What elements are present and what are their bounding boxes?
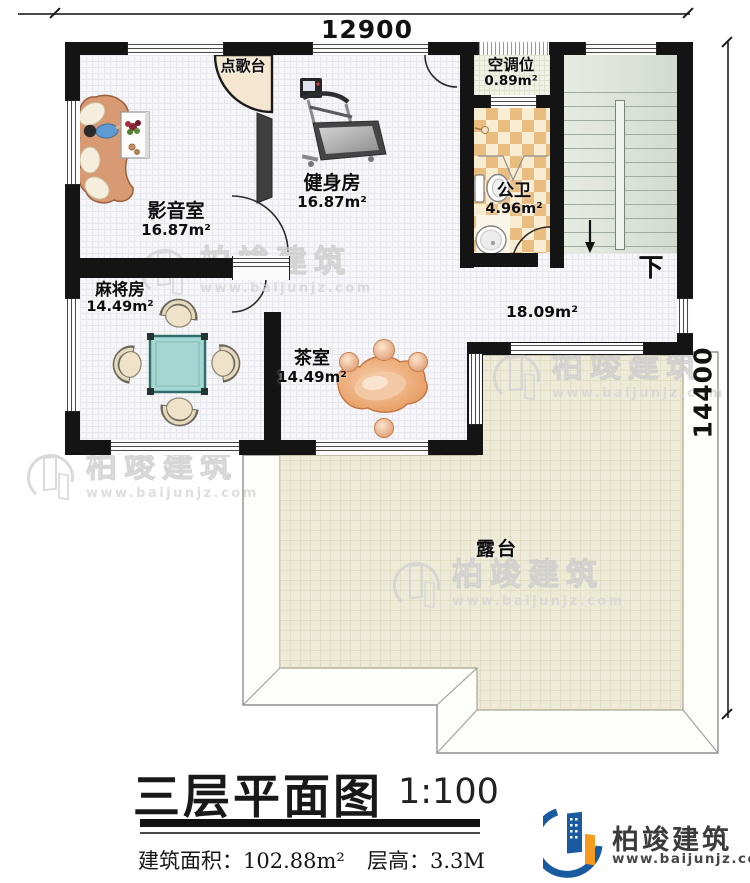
- window-tea-south: [315, 440, 429, 455]
- floor-height-label: 层高：: [367, 849, 430, 873]
- window-media-north: [127, 42, 224, 55]
- flower-table: [121, 112, 149, 158]
- stair-down-label: 下: [621, 253, 681, 283]
- room-label-mahjong: 麻将房14.49m²: [60, 280, 180, 317]
- dimension-line-right: [727, 42, 729, 718]
- title-underline-thick: [140, 819, 480, 827]
- louver-ac-unit: [478, 42, 550, 55]
- chair-south: [162, 396, 197, 425]
- tv-screen-panel: [257, 113, 272, 203]
- treadmill: [300, 78, 386, 167]
- room-label-karaoke: 点歌台: [183, 58, 303, 76]
- building-area-label: 建筑面积：: [138, 849, 243, 873]
- room-label-ac: 空调位0.89m²: [451, 56, 571, 90]
- building-area-info: 建筑面积：102.88m²: [138, 845, 345, 875]
- floor-height-info: 层高：3.3M: [367, 845, 485, 875]
- title-underline-thin: [140, 832, 480, 834]
- sink: [476, 226, 506, 254]
- window-mahjong-south: [110, 440, 240, 455]
- plan-title: 三层平面图: [133, 758, 383, 827]
- floor-height-value: 3.3M: [430, 849, 485, 873]
- dimension-width: 12900: [317, 15, 417, 44]
- window-hall-east: [677, 298, 693, 334]
- company-logo-icon: [543, 800, 605, 880]
- window-stair-north: [585, 42, 657, 55]
- shower-partition: [478, 156, 548, 180]
- room-label-terrace: 露台: [437, 538, 557, 560]
- room-label-media: 影音室16.87m²: [116, 200, 236, 240]
- room-label-bath: 公卫4.96m²: [454, 181, 574, 218]
- room-label-gym: 健身房16.87m²: [272, 172, 392, 212]
- plan-scale: 1:100: [398, 772, 499, 812]
- room-label-hall-area: 18.09m²: [482, 303, 602, 321]
- window-ac-bath: [490, 95, 537, 108]
- company-website: www.baijunjz.com: [612, 851, 750, 867]
- stair-down-arrow: [585, 220, 595, 253]
- floor-plan-page: 柏竣建筑 www.baijunjz.com 柏竣建筑 www.baijunjz.…: [0, 0, 750, 883]
- room-label-tea: 茶室14.49m²: [252, 348, 372, 387]
- sliding-door-terrace: [510, 343, 644, 354]
- mahjong-table: [147, 333, 208, 395]
- dimension-height: 14400: [689, 343, 718, 443]
- chair-west: [114, 347, 143, 382]
- wall-bath-south: [460, 253, 538, 267]
- building-area-value: 102.88m²: [243, 849, 345, 873]
- shower-head: [475, 127, 489, 134]
- doorframe-media-mahjong: [232, 256, 290, 280]
- window-tea-east: [469, 353, 482, 425]
- chair-east: [210, 346, 238, 380]
- window-media-west: [65, 100, 80, 185]
- door-mahjong-room: [232, 278, 266, 312]
